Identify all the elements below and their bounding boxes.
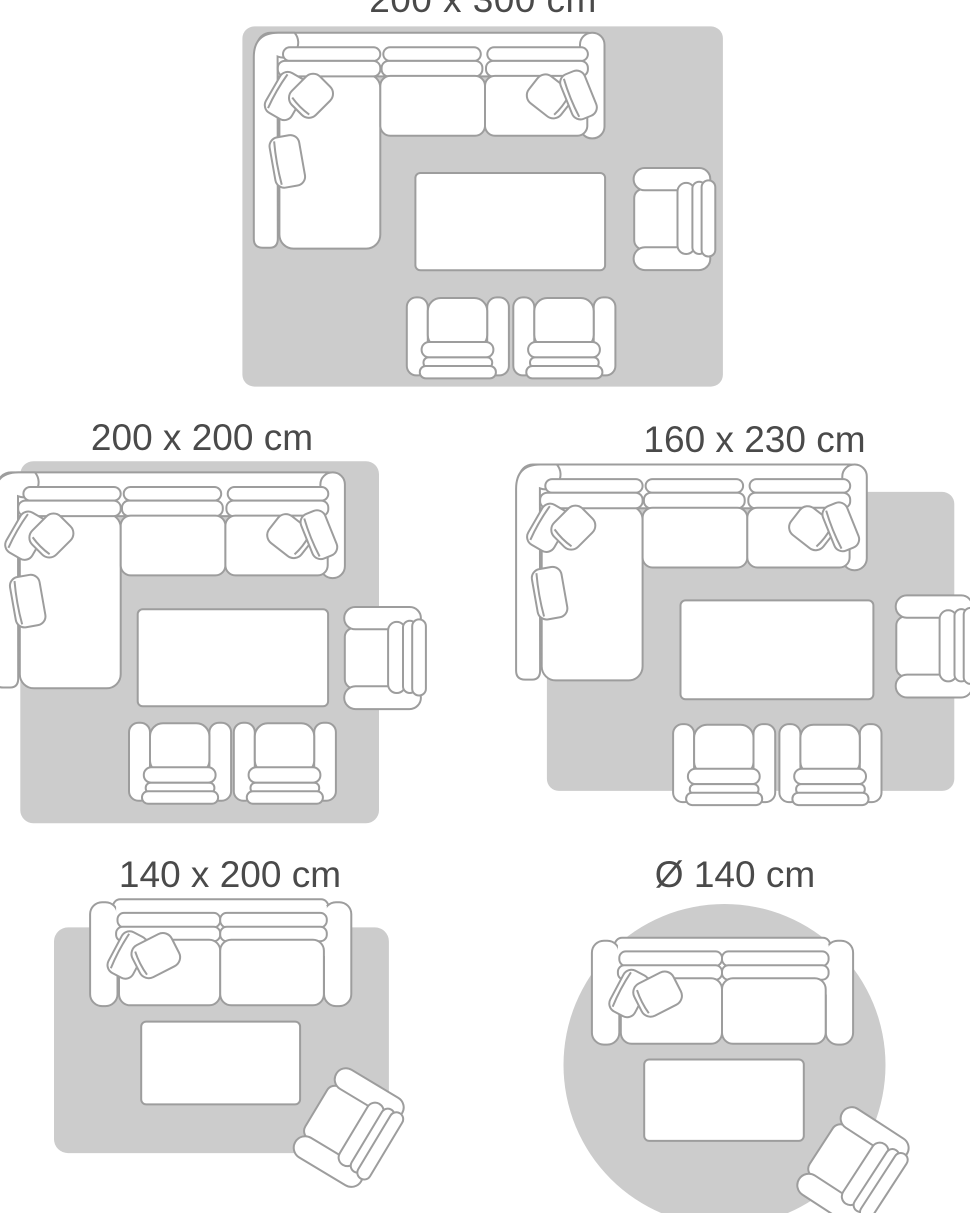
svg-text:140 x 200 cm: 140 x 200 cm <box>119 854 341 895</box>
svg-text:Ø 140 cm: Ø 140 cm <box>655 854 815 895</box>
svg-text:160 x 230 cm: 160 x 230 cm <box>643 419 865 460</box>
svg-text:200 x 200 cm: 200 x 200 cm <box>91 417 313 458</box>
svg-text:200 x 300 cm: 200 x 300 cm <box>369 0 597 20</box>
